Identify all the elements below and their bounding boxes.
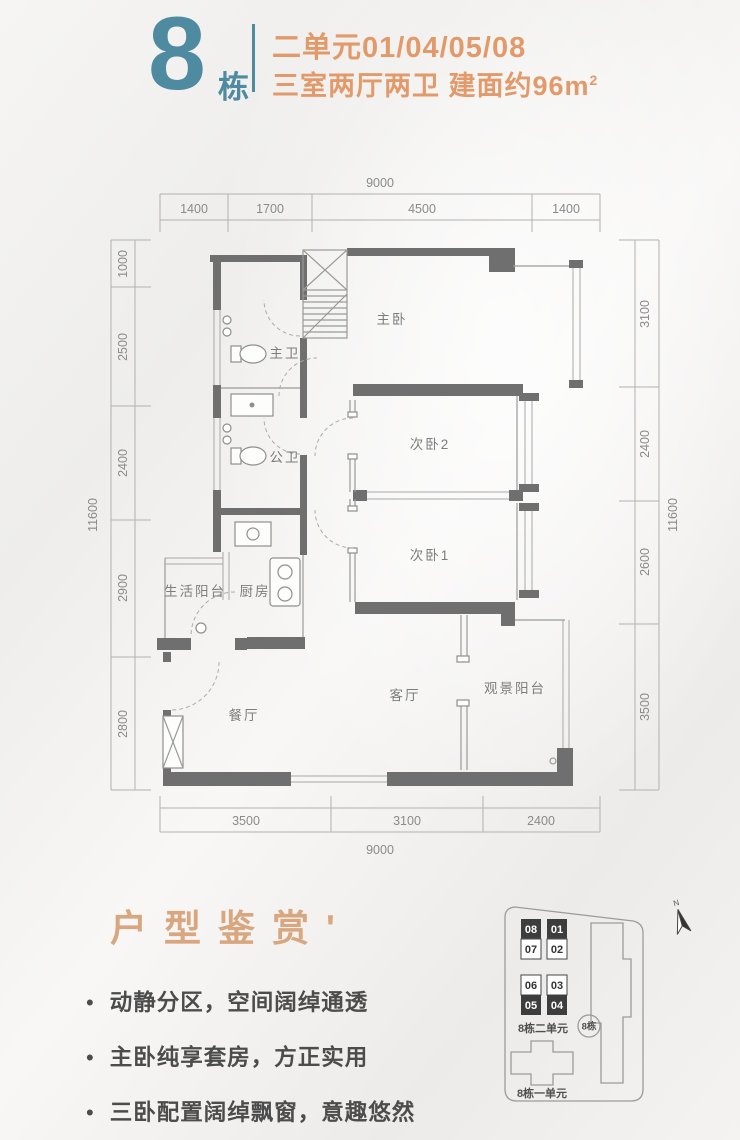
- unit-line: 二单元01/04/05/08: [272, 24, 526, 66]
- room-labels: 主卧 次卧2 次卧1 主卫 公卫 厨房 生活阳台 餐厅 客厅 观景阳台: [164, 312, 546, 723]
- stair-core: [303, 250, 347, 338]
- dim-bottom-seg3: 2400: [527, 814, 555, 828]
- label-master-bedroom: 主卧: [377, 312, 408, 327]
- dim-right-seg3: 2600: [638, 548, 652, 576]
- label-view-balcony: 观景阳台: [484, 681, 546, 696]
- dim-left-seg3: 2400: [116, 449, 130, 477]
- unit-grid: 08 07 01 02 06 05 03 04: [521, 919, 567, 1015]
- unit-02: 02: [551, 944, 563, 956]
- dim-strip-left: 11600 1000 2500 2400 2900 2800: [86, 240, 151, 790]
- building-suffix: 栋: [218, 62, 249, 107]
- dim-strip-bottom: 3500 3100 2400 9000: [160, 796, 600, 857]
- spec-superscript: 2: [590, 72, 599, 88]
- dim-right-seg1: 3100: [638, 300, 652, 328]
- dim-bottom-seg2: 3100: [393, 814, 421, 828]
- unit-06: 06: [525, 980, 537, 992]
- bath-fixtures: [223, 316, 273, 465]
- unit-04: 04: [551, 1000, 564, 1012]
- unit-07: 07: [525, 944, 537, 956]
- adjacent-building-outline: [591, 923, 631, 1083]
- door-bedroom2: [315, 418, 353, 456]
- highlight-text-3: 三卧配置阔绰飘窗，意趣悠然: [110, 1098, 416, 1128]
- bullet-dot: •: [86, 988, 94, 1018]
- dim-top-seg1: 1400: [180, 202, 208, 216]
- north-label: N: [672, 898, 680, 908]
- site-key-map-svg: N 08 07 01 02 06 05 03 04 8栋二单元 8栋 8栋一单元: [485, 893, 730, 1133]
- toilet-public-bath: [231, 447, 266, 465]
- dim-left-seg2: 2500: [116, 333, 130, 361]
- dim-right-seg2: 2400: [638, 430, 652, 458]
- toilet-master-bath: [231, 345, 266, 363]
- highlight-text-2: 主卧纯享套房，方正实用: [110, 1043, 369, 1073]
- dim-top-seg4: 1400: [552, 202, 580, 216]
- floor-plan-svg: 9000 1400 1700 4500 1400 3500 3100 2400 …: [85, 160, 685, 870]
- building-number: 8: [148, 2, 206, 106]
- label-living: 客厅: [390, 687, 421, 703]
- label-master-bath: 主卫: [270, 346, 301, 361]
- door-public-bath: [264, 418, 300, 454]
- floor-plan: 9000 1400 1700 4500 1400 3500 3100 2400 …: [85, 160, 685, 870]
- highlight-item: • 三卧配置阔绰飘窗，意趣悠然: [86, 1098, 486, 1128]
- door-entry: [171, 662, 219, 710]
- floorplan-page: 8 栋 二单元01/04/05/08 三室两厅两卫 建面约96m2 9000 1…: [0, 0, 740, 1140]
- dim-strip-right: 3100 2400 2600 3500 11600: [619, 240, 680, 790]
- label-kitchen: 厨房: [240, 584, 271, 599]
- spec-text: 三室两厅两卫 建面约96m: [272, 71, 590, 101]
- unit1-label: 8栋一单元: [517, 1086, 567, 1100]
- bullet-dot: •: [86, 1043, 94, 1073]
- dim-left-seg5: 2800: [116, 710, 130, 738]
- door-master-bedroom: [279, 358, 317, 396]
- site-key-map: N 08 07 01 02 06 05 03 04 8栋二单元 8栋 8栋一单元: [485, 893, 730, 1133]
- kitchen-fixtures: [196, 522, 300, 633]
- shower-box: [231, 394, 273, 416]
- unit-08: 08: [525, 924, 537, 936]
- dim-top-total: 9000: [366, 176, 394, 190]
- floor-plan-walls: [157, 248, 583, 786]
- label-bedroom2: 次卧2: [410, 437, 451, 452]
- dim-top-seg3: 4500: [408, 202, 436, 216]
- washer: [196, 623, 206, 633]
- dim-left-seg4: 2900: [116, 574, 130, 602]
- dim-left-total: 11600: [86, 498, 100, 532]
- label-service-balcony: 生活阳台: [164, 584, 226, 599]
- spec-line: 三室两厅两卫 建面约96m2: [272, 64, 598, 103]
- highlight-item: • 主卧纯享套房，方正实用: [86, 1043, 486, 1073]
- label-bedroom1: 次卧1: [410, 548, 451, 563]
- dim-right-total: 11600: [666, 498, 680, 532]
- building-badge: 8栋: [582, 1021, 597, 1033]
- unit2-label: 8栋二单元: [518, 1021, 568, 1035]
- label-dining: 餐厅: [229, 708, 260, 723]
- dim-right-seg4: 3500: [638, 693, 652, 721]
- highlight-text-1: 动静分区，空间阔绰通透: [110, 988, 369, 1018]
- section-title: 户型鉴赏': [110, 898, 352, 952]
- dim-strip-top: 9000 1400 1700 4500 1400: [160, 176, 600, 232]
- dim-bottom-seg1: 3500: [232, 814, 260, 828]
- bullet-dot: •: [86, 1098, 94, 1128]
- door-bedroom1: [315, 510, 353, 548]
- unit-05: 05: [525, 1000, 537, 1012]
- unit-03: 03: [551, 980, 563, 992]
- dim-top-seg2: 1700: [256, 202, 284, 216]
- header-divider: [252, 24, 255, 92]
- highlight-item: • 动静分区，空间阔绰通透: [86, 988, 486, 1018]
- dim-bottom-total: 9000: [366, 843, 394, 857]
- unit1-building-outline: [511, 1041, 573, 1085]
- basin-icons: [223, 316, 231, 444]
- label-public-bath: 公卫: [270, 450, 301, 465]
- door-master-bath: [264, 300, 300, 336]
- dim-left-seg1: 1000: [116, 250, 130, 278]
- unit-01: 01: [551, 924, 563, 936]
- north-arrow: N: [668, 897, 691, 934]
